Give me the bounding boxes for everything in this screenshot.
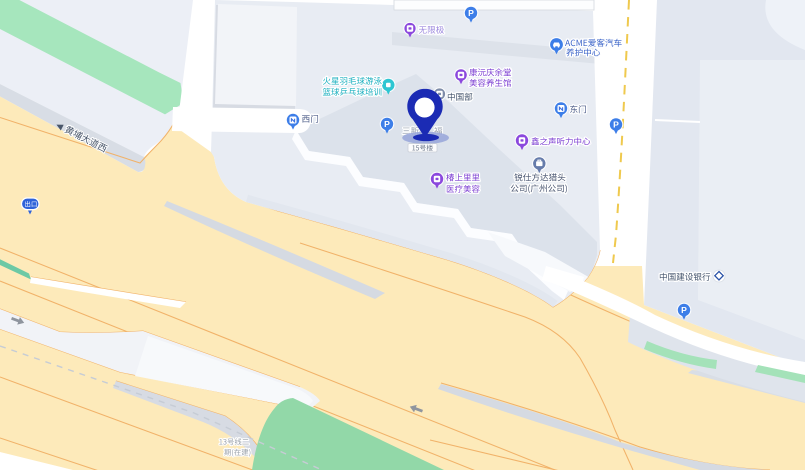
svg-text:P: P bbox=[468, 8, 474, 18]
svg-text:P: P bbox=[613, 120, 619, 130]
svg-text:P: P bbox=[681, 305, 687, 315]
svg-text:P: P bbox=[384, 119, 390, 129]
